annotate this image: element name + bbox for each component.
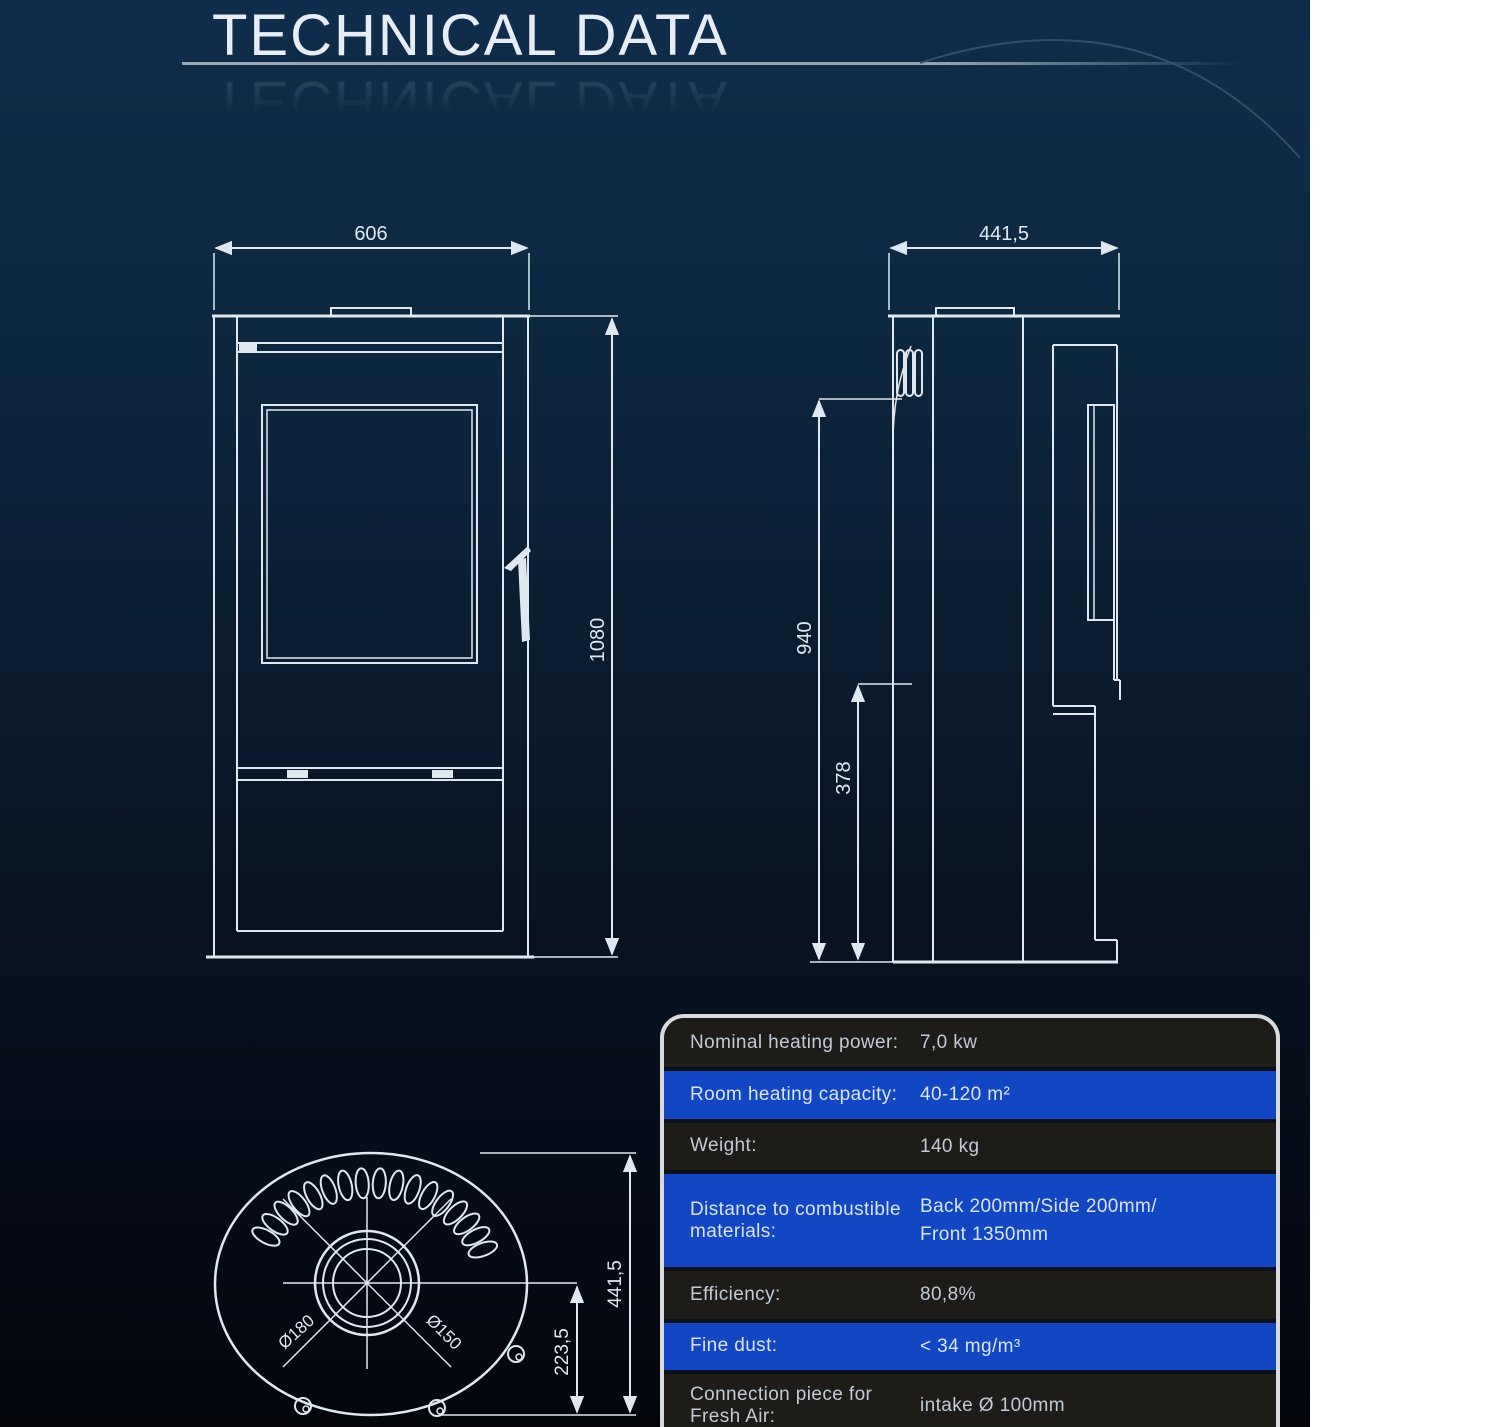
spec-value: 7,0 kw (920, 1019, 1276, 1067)
dim-label-front-width: 606 (354, 223, 387, 245)
spec-label: Connection piece for Fresh Air: (664, 1374, 920, 1427)
spec-label: Weight: (664, 1125, 920, 1167)
sheet-content-area: TECHNICAL DATA TECHNICAL DATA (0, 0, 1310, 1427)
stove-feet (295, 1346, 524, 1416)
spec-value: intake Ø 100mm (920, 1382, 1276, 1427)
spec-label: Room heating capacity: (664, 1074, 920, 1116)
decorative-swoosh (920, 40, 1300, 158)
spec-label: Distance to combustible materials: (664, 1189, 920, 1253)
technical-data-sheet: TECHNICAL DATA TECHNICAL DATA (0, 0, 1500, 1427)
dim-label-side-height: 940 (794, 621, 816, 654)
spec-value: Back 200mm/Side 200mm/ Front 1350mm (920, 1183, 1276, 1258)
door-handle (504, 546, 531, 571)
spec-label: Efficiency: (664, 1274, 920, 1316)
dim-label-collar-inner: Ø150 (422, 1311, 465, 1354)
spec-value: 80,8% (920, 1271, 1276, 1319)
spec-row-nominal-heating-power: Nominal heating power: 7,0 kw (664, 1018, 1276, 1067)
spec-row-distance-to-combustibles: Distance to combustible materials: Back … (664, 1174, 1276, 1267)
page-white-margin (1310, 0, 1500, 1427)
spec-value: < 34 mg/m³ (920, 1323, 1276, 1371)
spec-value: 140 kg (920, 1123, 1276, 1171)
dim-label-collar-outer: Ø180 (275, 1311, 319, 1353)
spec-row-room-heating-capacity: Room heating capacity: 40-120 m² (664, 1071, 1276, 1119)
front-view-drawing (206, 248, 618, 957)
dim-label-top-depth: 441,5 (605, 1260, 626, 1308)
spec-table: Nominal heating power: 7,0 kw Room heati… (660, 1014, 1280, 1427)
dim-label-side-depth: 441,5 (979, 223, 1029, 245)
spec-row-weight: Weight: 140 kg (664, 1123, 1276, 1171)
dim-label-front-height: 1080 (587, 618, 609, 663)
spec-label: Nominal heating power: (664, 1022, 920, 1064)
spec-row-fine-dust: Fine dust: < 34 mg/m³ (664, 1323, 1276, 1371)
vent-slot-ring (250, 1168, 500, 1261)
spec-row-efficiency: Efficiency: 80,8% (664, 1271, 1276, 1319)
spec-row-fresh-air-connection: Connection piece for Fresh Air: intake Ø… (664, 1374, 1276, 1427)
spec-value: 40-120 m² (920, 1071, 1276, 1119)
dim-label-side-lower-height: 378 (833, 761, 855, 794)
dim-label-top-center-offset: 223,5 (552, 1328, 573, 1376)
spec-label: Fine dust: (664, 1325, 920, 1367)
side-view-drawing (810, 248, 1120, 962)
flue-crosshair (283, 1197, 577, 1369)
